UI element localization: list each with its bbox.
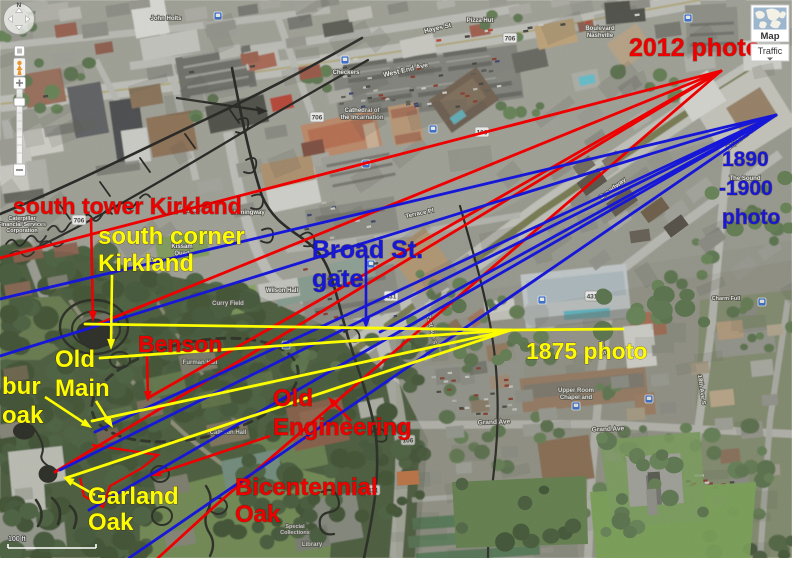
svg-text:south corner: south corner (98, 223, 245, 250)
svg-text:Kirkland: Kirkland (98, 250, 194, 277)
svg-text:Benson: Benson (138, 331, 222, 357)
svg-text:1875 photo: 1875 photo (526, 338, 647, 364)
svg-text:Main: Main (55, 375, 110, 402)
svg-text:Old: Old (55, 346, 95, 373)
svg-text:2012 photo: 2012 photo (629, 34, 761, 62)
svg-text:photo: photo (722, 206, 780, 229)
svg-text:Engineering: Engineering (273, 414, 412, 441)
svg-text:gate: gate (312, 265, 364, 293)
svg-text:oak: oak (2, 402, 44, 429)
svg-text:Old: Old (273, 385, 313, 412)
svg-text:Broad St.: Broad St. (312, 236, 423, 264)
svg-text:Map: Map (761, 31, 780, 42)
svg-text:Oak: Oak (235, 501, 281, 528)
svg-text:bur: bur (2, 373, 41, 400)
svg-text:south tower Kirkland: south tower Kirkland (13, 193, 242, 219)
svg-text:Bicentennial: Bicentennial (235, 474, 378, 501)
svg-text:N: N (17, 2, 22, 9)
svg-text:Oak: Oak (88, 509, 134, 536)
svg-text:100 ft: 100 ft (8, 536, 26, 543)
svg-text:-1900: -1900 (719, 177, 773, 200)
svg-text:Garland: Garland (88, 483, 179, 510)
svg-text:1890: 1890 (722, 148, 769, 171)
svg-text:Traffic: Traffic (758, 46, 783, 56)
